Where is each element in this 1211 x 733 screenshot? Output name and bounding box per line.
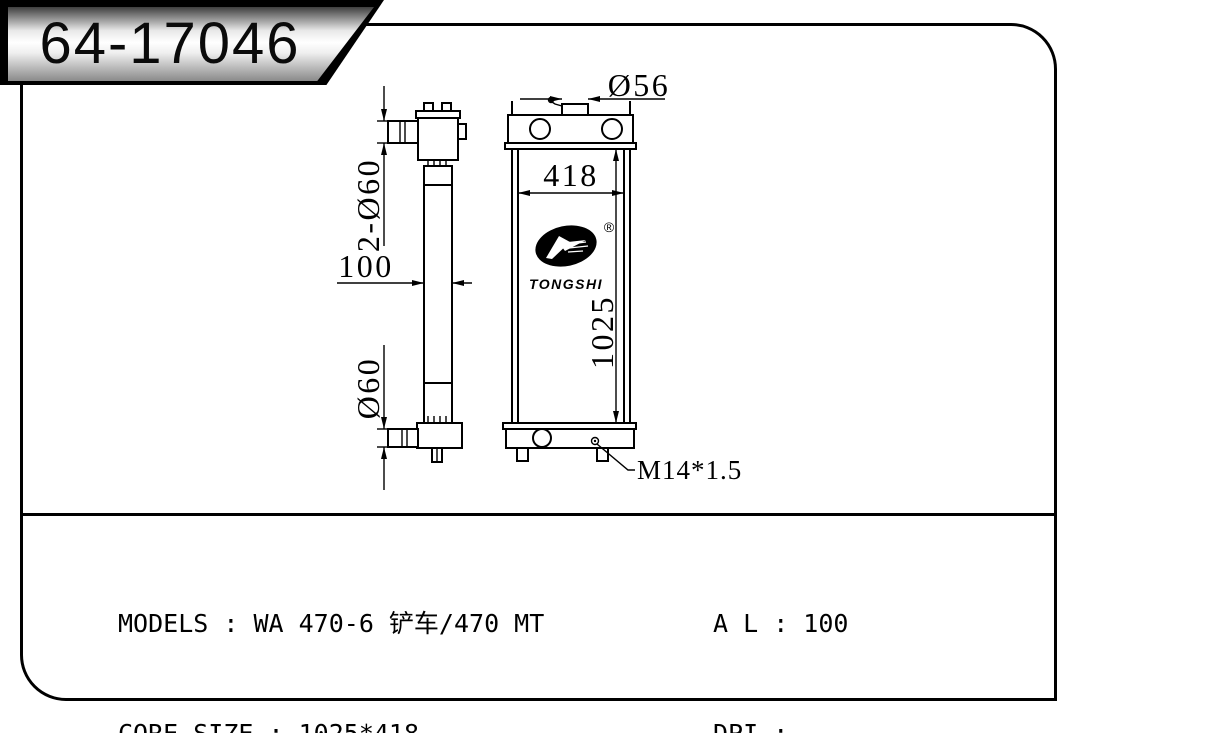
technical-drawing: 2-Ø60 100 Ø60 bbox=[330, 75, 750, 515]
spec-al: A L : 100 bbox=[713, 606, 1029, 643]
side-inlet-pipe bbox=[388, 121, 418, 143]
dim-core-width: 418 bbox=[543, 157, 599, 193]
dim-core-thickness: 100 bbox=[338, 248, 394, 284]
registered-mark: ® bbox=[604, 219, 615, 235]
mount-leg-right bbox=[597, 448, 608, 461]
side-top-bolt-left bbox=[424, 103, 433, 111]
side-outlet-pipe bbox=[388, 429, 418, 447]
side-top-tab bbox=[458, 124, 466, 139]
brand-name: TONGSHI bbox=[529, 276, 603, 292]
filler-hole-left bbox=[530, 119, 550, 139]
dim-top-diameter: Ø56 bbox=[608, 75, 671, 103]
filler-hole-right bbox=[602, 119, 622, 139]
drawing-sheet: 64-17046 bbox=[0, 0, 1211, 733]
side-top-tank bbox=[418, 118, 458, 160]
dim-outlet-pipe: Ø60 bbox=[350, 357, 386, 420]
part-number-plate: 64-17046 bbox=[8, 7, 374, 81]
filler-neck bbox=[562, 104, 588, 115]
dim-drain-plug: M14*1.5 bbox=[637, 455, 742, 485]
spec-column-left: MODELS : WA 470-6 铲车/470 MT CORE SIZE : … bbox=[118, 533, 544, 733]
spec-models: MODELS : WA 470-6 铲车/470 MT bbox=[118, 606, 544, 643]
side-top-plate bbox=[416, 111, 460, 118]
dim-core-height: 1025 bbox=[584, 295, 620, 369]
spec-core-size: CORE SIZE : 1025*418 bbox=[118, 716, 544, 733]
front-bottom-tank bbox=[506, 429, 634, 448]
outlet-hole bbox=[533, 429, 551, 447]
side-bottom-tank bbox=[417, 423, 462, 448]
side-top-bolt-right bbox=[442, 103, 451, 111]
mount-leg-left bbox=[517, 448, 528, 461]
spec-dpi: DPI : bbox=[713, 716, 1029, 733]
side-core bbox=[424, 166, 452, 423]
part-number: 64-17046 bbox=[39, 15, 300, 73]
spec-column-right: A L : 100 DPI : OEM : 1771-093-1050-A NI… bbox=[713, 533, 1029, 733]
dim-inlet-pipes: 2-Ø60 bbox=[350, 158, 386, 252]
